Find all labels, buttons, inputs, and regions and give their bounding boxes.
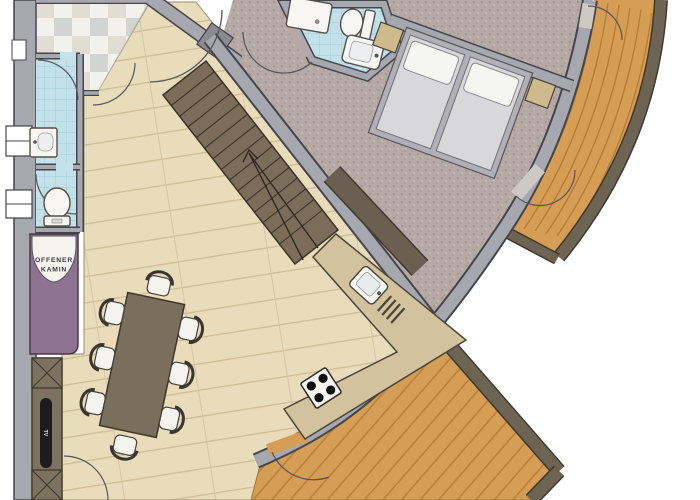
window-opening	[12, 40, 26, 60]
fireplace: OFFENER KAMIN	[30, 234, 78, 354]
cabinet-top	[32, 358, 62, 388]
floorplan-page: OFFENER KAMIN TV	[0, 0, 700, 500]
door-gap	[60, 52, 76, 60]
tv-wall-unit: TV	[32, 358, 62, 500]
washbasin	[30, 128, 57, 157]
tv-label: TV	[42, 430, 48, 437]
door-gap	[585, 4, 589, 28]
guest-bath-wc	[30, 52, 80, 232]
floorplan-drawing: OFFENER KAMIN TV	[0, 0, 700, 500]
door-gap	[56, 163, 73, 171]
fireplace-label-line2: KAMIN	[41, 267, 67, 274]
toilet	[44, 188, 70, 226]
cabinet-bottom	[32, 470, 62, 500]
fireplace-label-line1: OFFENER	[35, 257, 73, 264]
